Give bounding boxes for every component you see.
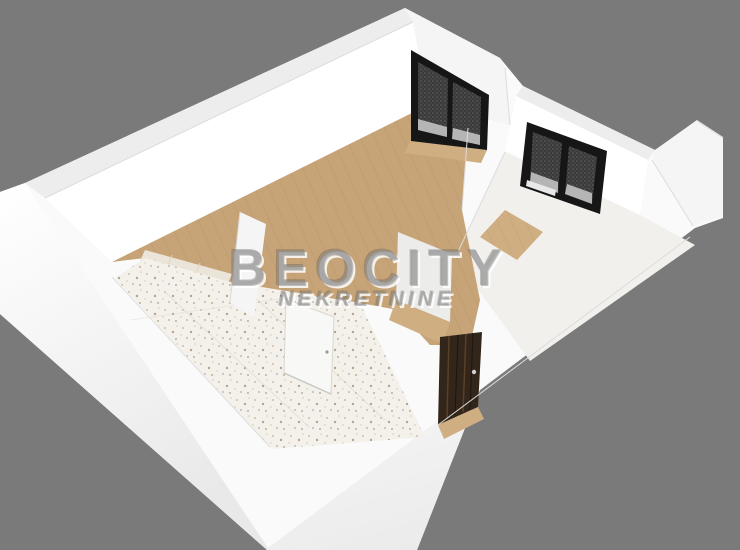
floor-plan-image: BEOCITY BEOCITY BEOCITY NEKRETNINE NEKRE… <box>0 0 740 550</box>
interior-door-handle <box>325 350 328 353</box>
floor-plan-svg: BEOCITY BEOCITY BEOCITY NEKRETNINE NEKRE… <box>0 0 740 550</box>
watermark-subtitle: NEKRETNINE <box>279 288 456 311</box>
entry-door-handle <box>472 370 476 374</box>
